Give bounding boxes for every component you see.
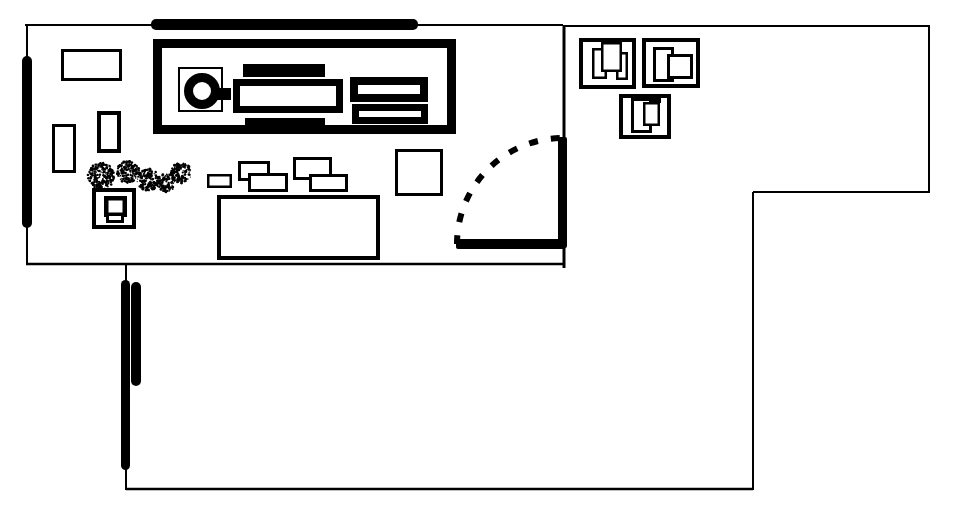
- small-desk: [208, 175, 231, 187]
- partition-stroke-long: [121, 280, 130, 470]
- chair-seat: [106, 198, 125, 215]
- cabinet-left: [54, 126, 75, 172]
- desk-b-front: [311, 176, 347, 191]
- machine-bar-top: [243, 64, 325, 77]
- door-swing-arc: [457, 138, 563, 244]
- workstation-c-right: [644, 103, 659, 125]
- plant-blob-3: [137, 168, 161, 192]
- paint-canvas: [0, 0, 962, 512]
- workstation-b-right: [669, 56, 692, 78]
- door-side-table: [397, 151, 442, 195]
- machine-bar-bottom: [245, 118, 325, 131]
- cabinet-mid: [99, 113, 119, 151]
- plant-blob-1: [87, 162, 115, 190]
- plant-blob-2: [116, 160, 140, 184]
- work-table: [219, 197, 378, 258]
- shelf: [63, 51, 121, 80]
- door-leaf: [558, 137, 567, 248]
- partition-stroke-short: [131, 282, 141, 386]
- wall-thick-door-bottom: [456, 239, 565, 249]
- floor-plan-drawing: [0, 0, 962, 512]
- chair-base: [108, 215, 123, 222]
- wall-thick-left: [22, 56, 32, 228]
- desk-a-front: [250, 175, 287, 191]
- machine-body: [237, 83, 340, 110]
- workstation-a-center: [602, 43, 621, 71]
- machine-vent-lower: [356, 108, 425, 121]
- wall-thick-top: [151, 19, 418, 30]
- machine-vent-upper: [354, 81, 424, 98]
